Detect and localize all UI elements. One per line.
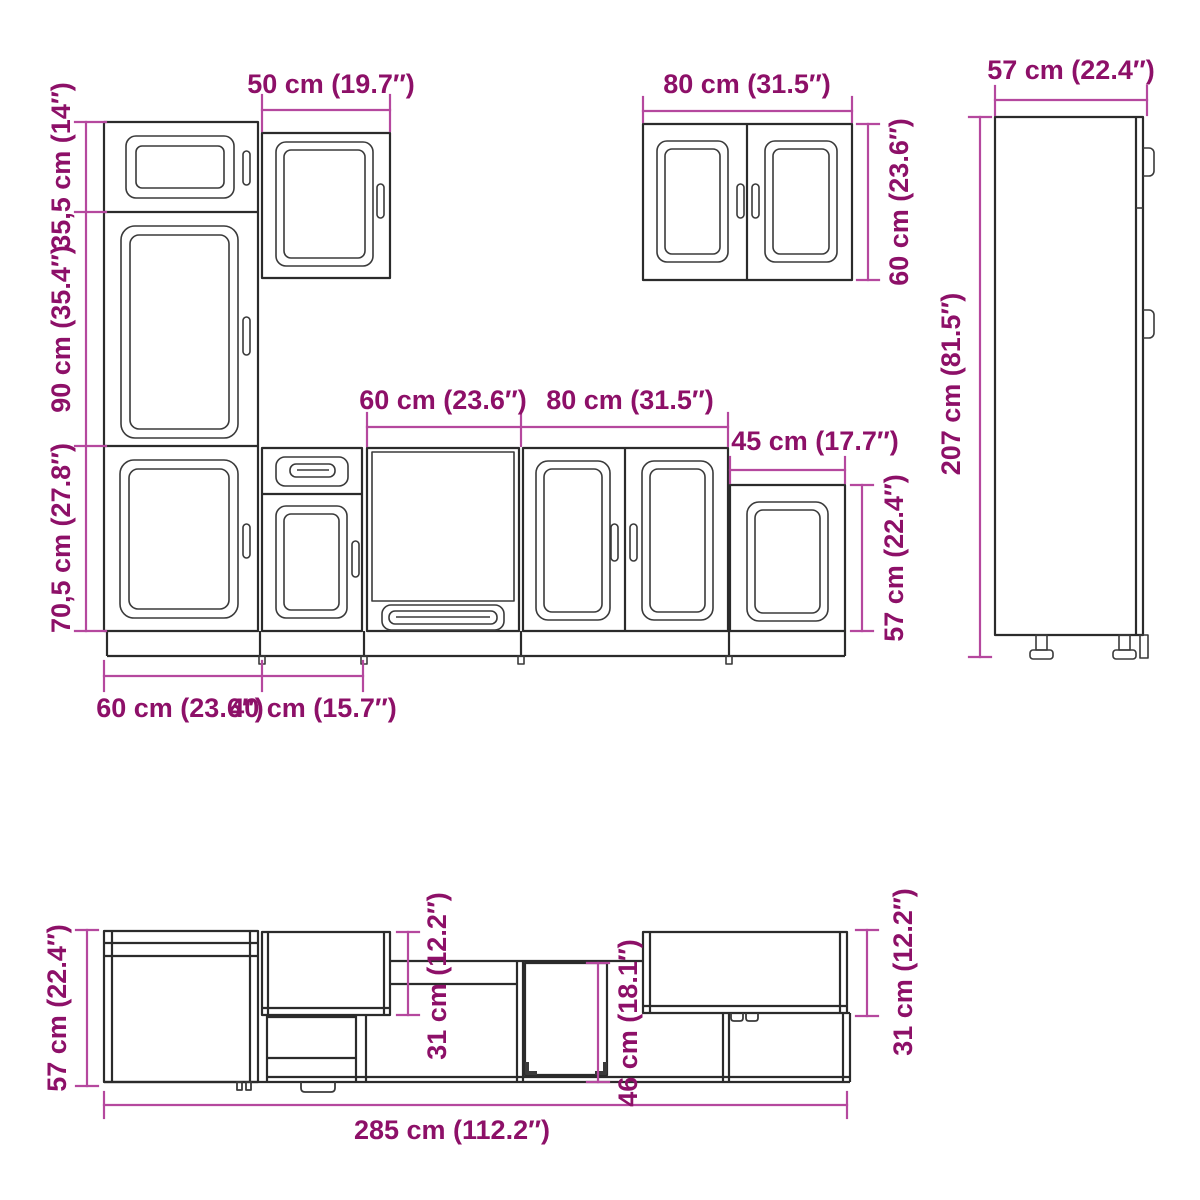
door-panel: [747, 502, 828, 621]
door-panel: [642, 461, 713, 620]
plan-view-dimension-lines: [76, 930, 878, 1118]
plan-drawer-handle: [301, 1082, 335, 1092]
foot-mark: [726, 656, 732, 664]
drawer-front-panel: [276, 457, 348, 486]
dim-label-base-section-height: 70,5 cm (27.8″): [46, 443, 76, 633]
dim-label-wall-cabinet-80-height: 60 cm (23.6″): [884, 118, 914, 286]
plan-wall-80: [643, 932, 847, 1013]
door-handle: [630, 524, 637, 561]
door-panel: [120, 460, 238, 618]
dim-label-base-cabinet-40-width: 40 cm (15.7″): [229, 693, 397, 723]
door-panel: [536, 461, 610, 620]
dim-label-plan-cabinet-depth: 57 cm (22.4″): [42, 924, 72, 1092]
plan-corner-bracket: [595, 1062, 605, 1073]
door-handle: [243, 317, 250, 355]
plan-wall-50: [262, 932, 390, 1015]
door-handle: [611, 524, 618, 561]
adjustable-foot: [1119, 635, 1130, 650]
door-handle: [243, 524, 250, 558]
foot-mark: [518, 656, 524, 664]
drawer-handle: [243, 151, 250, 185]
plan-door-handle: [731, 1013, 743, 1021]
diagram-canvas: 35,5 cm (14″) 90 cm (35.4″) 70,5 cm (27.…: [0, 0, 1200, 1200]
dim-label-middle-section-height: 90 cm (35.4″): [46, 245, 76, 413]
plan-handle-mark: [246, 1082, 251, 1090]
plan-handle-mark: [237, 1082, 242, 1090]
side-handle: [1143, 310, 1154, 338]
plan-view-outlines: [104, 931, 850, 1082]
oven-cabinet-body: [367, 448, 519, 631]
door-handle: [737, 184, 744, 218]
dim-label-plan-total-width: 285 cm (112.2″): [354, 1115, 550, 1145]
dim-label-base-cabinet-45-width: 45 cm (17.7″): [731, 426, 899, 456]
dim-label-oven-cabinet-width: 60 cm (23.6″): [359, 385, 527, 415]
kitchen-cabinet-dimension-drawing: 35,5 cm (14″) 90 cm (35.4″) 70,5 cm (27.…: [0, 0, 1200, 1200]
door-handle: [377, 184, 384, 218]
plan-corner-bracket: [527, 1062, 537, 1073]
door-panel: [276, 506, 347, 618]
dim-label-plan-wall-depth-right: 31 cm (12.2″): [888, 888, 918, 1056]
dim-label-wall-cabinet-80-width: 80 cm (31.5″): [663, 69, 831, 99]
wall-cabinet-50-body: [262, 133, 390, 278]
dim-label-base-cabinet-45-height: 57 cm (22.4″): [879, 474, 909, 642]
door-handle: [352, 541, 359, 577]
front-view-dimension-labels: 35,5 cm (14″) 90 cm (35.4″) 70,5 cm (27.…: [46, 55, 1155, 723]
plan-recess: [525, 963, 607, 1075]
plan-view-dimension-labels: 57 cm (22.4″) 31 cm (12.2″) 46 cm (18.1″…: [42, 888, 918, 1145]
adjustable-foot: [1036, 635, 1047, 650]
dim-label-base-cabinet-80-width: 80 cm (31.5″): [546, 385, 714, 415]
door-panel: [765, 141, 837, 262]
dim-label-tall-cabinet-height: 207 cm (81.5″): [936, 293, 966, 476]
dim-label-tall-cabinet-width: 57 cm (22.4″): [987, 55, 1155, 85]
door-panel: [121, 226, 238, 438]
plan-base-60: [104, 931, 258, 1082]
door-panel: [276, 142, 373, 266]
plan-view-details: [237, 1013, 758, 1092]
side-handle: [1143, 148, 1154, 176]
tall-cabinet-body: [995, 117, 1143, 635]
plan-door-handle: [746, 1013, 758, 1021]
side-panel-bottom: [1140, 635, 1148, 658]
oven-cavity: [372, 452, 514, 601]
dim-label-wall-cabinet-50-width: 50 cm (19.7″): [247, 69, 415, 99]
dim-label-plan-wall-depth-left: 31 cm (12.2″): [422, 892, 452, 1060]
door-panel: [657, 141, 728, 262]
dim-label-plan-recess-depth: 46 cm (18.1″): [613, 939, 643, 1107]
door-handle: [752, 184, 759, 218]
dim-label-upper-section-height: 35,5 cm (14″): [46, 82, 76, 250]
